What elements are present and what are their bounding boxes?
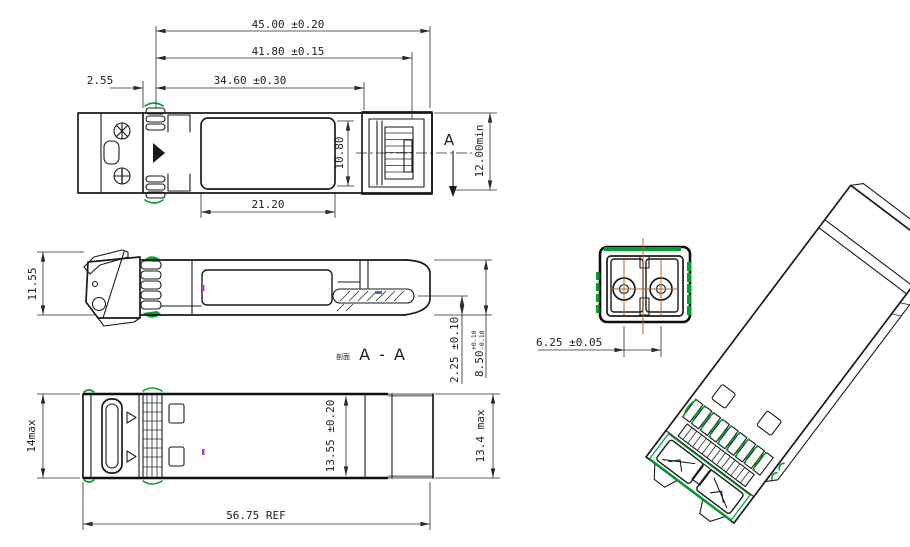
dim-height-11-55: 11.55 [26, 267, 39, 300]
iso-grill [678, 424, 754, 487]
lc-slot [102, 399, 122, 473]
bottom-view: 14max 13.55 ±0.20 13.4 max 56.75 REF [25, 388, 500, 530]
svg-text:8.50: 8.50 [473, 351, 486, 378]
top-view-outline [78, 103, 472, 203]
isometric-view [638, 178, 910, 539]
dim-label-recess-length: 21.20 [251, 198, 284, 211]
dim-overall-length: 45.00 ±0.20 [252, 18, 325, 31]
dim-recess-width: 10.80 [333, 136, 346, 169]
dim-nose-height: 8.50 +0.10 -0.10 [470, 330, 486, 377]
front-view-dimensions: 6.25 ±0.05 [536, 326, 661, 357]
emi-comb [84, 388, 162, 484]
mark-blue [375, 291, 382, 294]
section-letter: A [444, 131, 455, 149]
dim-length-41-80: 41.80 ±0.15 [252, 45, 325, 58]
iso-emi-comb [681, 397, 784, 483]
side-view-section: 11.55 2.25 ±0.10 8.50 +0.10 -0.10 剖面 A -… [26, 250, 492, 384]
screw-icon [114, 168, 130, 184]
emi-gasket-right [687, 262, 691, 315]
label-recess [201, 118, 335, 189]
dim-ferrule-pitch: 6.25 ±0.05 [536, 336, 602, 349]
dim-max-height: 14max [25, 419, 38, 452]
side-view-dimensions: 11.55 2.25 ±0.10 8.50 +0.10 -0.10 剖面 A -… [26, 252, 492, 384]
section-cut-indicator: A [444, 131, 457, 197]
dim-length-34-60: 34.60 ±0.30 [214, 74, 287, 87]
dim-rear-width: 13.4 max [474, 409, 487, 462]
dim-front-offset: 2.55 [87, 74, 114, 87]
iso-lc-front [641, 434, 750, 531]
bottom-outline [83, 388, 433, 484]
front-view-lc: 6.25 ±0.05 [536, 238, 691, 357]
dim-min-clearance: 12.00min [473, 125, 486, 178]
svg-text:+0.10: +0.10 [470, 330, 478, 350]
dim-bore-offset: 2.25 ±0.10 [448, 317, 461, 383]
side-body [140, 260, 407, 315]
svg-text:-0.10: -0.10 [478, 330, 486, 350]
mark-purple [202, 285, 205, 291]
mark-purple [202, 449, 205, 455]
screw-icon [114, 123, 130, 139]
section-caption: A - A [359, 345, 407, 364]
top-view: 45.00 ±0.20 41.80 ±0.15 34.60 ±0.30 2.55… [78, 18, 497, 218]
dim-ref-length: 56.75 REF [226, 509, 286, 522]
bottom-view-dimensions: 14max 13.55 ±0.20 13.4 max 56.75 REF [25, 394, 500, 530]
orientation-arrow [153, 143, 165, 163]
engineering-drawing-canvas: 45.00 ±0.20 41.80 ±0.15 34.60 ±0.30 2.55… [0, 0, 910, 547]
emi-fingers-side [141, 256, 161, 318]
section-caption-prefix: 剖面 [336, 352, 350, 361]
section-nose [333, 260, 430, 315]
dim-body-width: 13.55 ±0.20 [324, 400, 337, 473]
drawing-sheet: 45.00 ±0.20 41.80 ±0.15 34.60 ±0.30 2.55… [0, 0, 910, 547]
